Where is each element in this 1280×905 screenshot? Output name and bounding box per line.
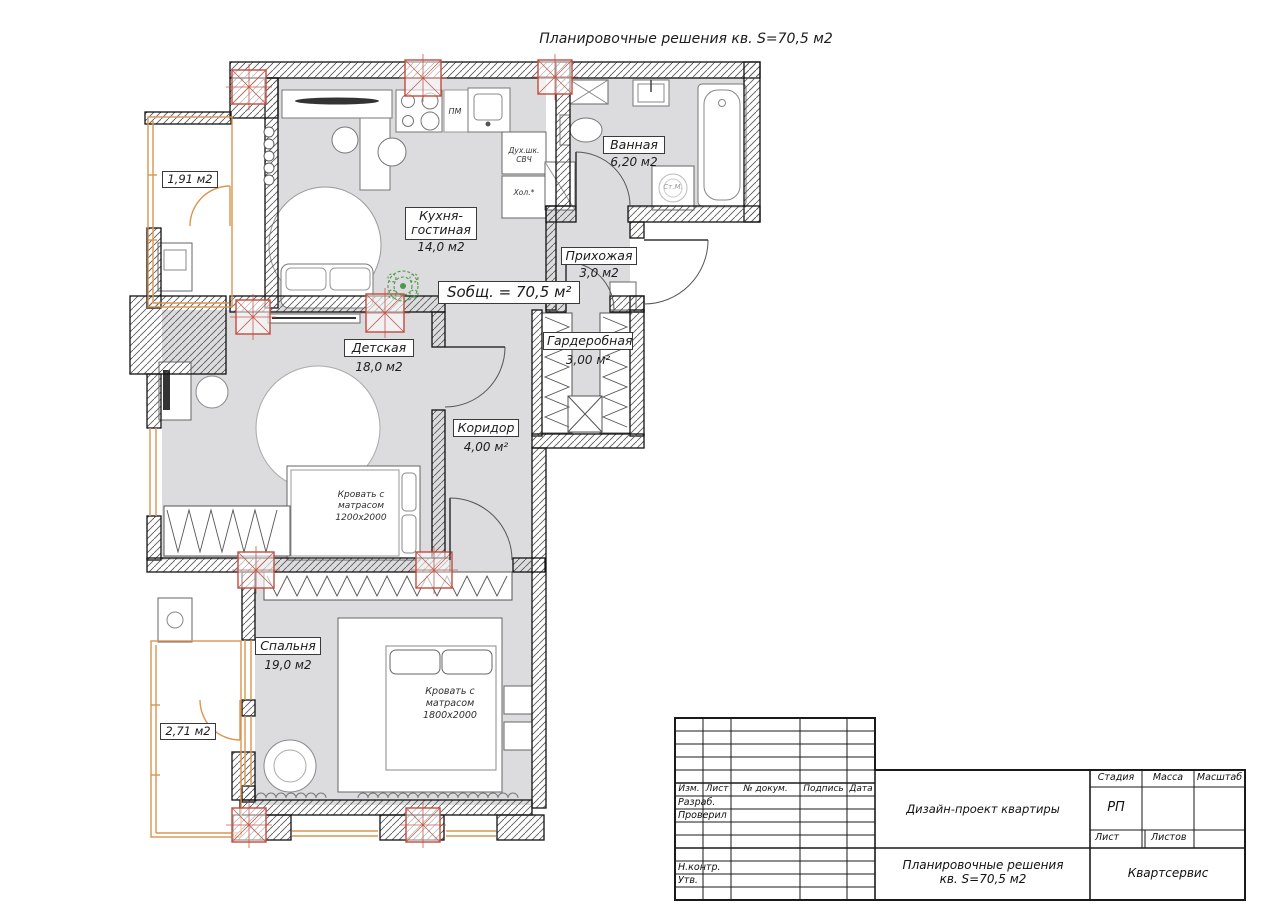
main-bed-label: Кровать с матрасом 1800х2000 [406, 686, 494, 722]
side-cabinet [158, 598, 192, 642]
room-label-bedroom: Спальня [255, 637, 321, 655]
total-area-label: Sобщ. = 70,5 м² [438, 281, 580, 304]
tb-sheet-label: Лист [1095, 832, 1119, 843]
room-area-bedroom: 19,0 м2 [255, 659, 321, 672]
wall [145, 112, 231, 124]
balcony-door-arc [190, 186, 230, 226]
tb-col-sign: Подпись [800, 784, 847, 794]
dishwasher-label: ПМ [443, 107, 467, 117]
entry-door-arc [644, 240, 708, 304]
page-title: Планировочные решения кв. S=70,5 м2 [486, 31, 886, 47]
wall [513, 558, 545, 572]
tb-row-nkontr: Н.контр. [678, 862, 721, 873]
room-label-kitchen: Кухня-гостиная [405, 207, 477, 240]
tb-row-proveril: Проверил [678, 810, 727, 821]
room-label-bathroom: Ванная [603, 136, 665, 154]
sofa-cushion [286, 268, 326, 290]
room-label-wardrobe: Гардеробная [543, 332, 633, 350]
wall [130, 296, 226, 374]
washer-label: Ст.М. [658, 183, 688, 192]
room-label-hallway: Прихожая [561, 247, 637, 265]
wall [532, 448, 546, 808]
column-marker-cross [410, 546, 458, 594]
armchair [264, 740, 316, 792]
nightstand [504, 722, 532, 750]
kids-monitor [163, 370, 170, 410]
kids-bed-label: Кровать с матрасом 1200х2000 [322, 490, 400, 524]
kids-chair [196, 376, 228, 408]
wall [532, 434, 644, 448]
toilet [570, 118, 602, 142]
balcony-bottom-area: 2,71 м2 [160, 723, 216, 740]
main-pillow [442, 650, 492, 674]
column-marker-cross [400, 802, 446, 848]
tb-col-izm: Изм. [675, 784, 703, 794]
tb-sheets-label: Листов [1151, 832, 1187, 843]
bedroom-wardrobe [264, 572, 512, 600]
column-marker-cross [232, 546, 280, 594]
column-marker-cross [399, 54, 447, 102]
bathtub [698, 84, 746, 206]
tb-scale-label: Масштаб [1194, 772, 1245, 783]
drawing-sheet: Планировочные решения кв. S=70,5 м2 Кухн… [0, 0, 1280, 905]
dining-chair [378, 138, 406, 166]
wall [432, 410, 445, 558]
dining-chair [332, 127, 358, 153]
wall [497, 815, 544, 840]
wall [532, 310, 542, 436]
nightstand [504, 686, 532, 714]
tb-mass-label: Масса [1142, 772, 1194, 783]
tb-row-utv: Утв. [678, 875, 698, 886]
column-marker-cross [360, 288, 410, 338]
fridge-label: Хол.* [502, 188, 546, 197]
room-area-corridor: 4,00 м² [453, 441, 519, 454]
main-pillow [390, 650, 440, 674]
wall [744, 62, 760, 222]
radiator-coil [264, 127, 274, 185]
wall [147, 558, 450, 572]
tb-stage-value: РП [1090, 800, 1142, 815]
column-marker-cross [226, 64, 272, 110]
oven-label: Дух.шк. СВЧ [502, 146, 546, 165]
wall [432, 312, 445, 347]
wall [630, 310, 644, 436]
tb-doc-title: Планировочные решения кв. S=70,5 м2 [880, 858, 1086, 887]
tb-col-doc: № докум. [731, 784, 800, 794]
room-area-kids: 18,0 м2 [344, 361, 414, 374]
kids-pillow [402, 473, 416, 511]
tb-row-razrab: Разраб. [678, 797, 715, 808]
wall [242, 700, 255, 716]
room-area-bathroom: 6,20 м2 [603, 156, 665, 169]
tb-company: Квартсервис [1092, 866, 1244, 880]
tb-project-name: Дизайн-проект квартиры [880, 802, 1086, 816]
wall [630, 222, 644, 238]
tb-col-date: Дата [847, 784, 875, 794]
room-label-kids: Детская [344, 339, 414, 357]
room-area-kitchen: 14,0 м2 [405, 241, 477, 254]
room-label-corridor: Коридор [453, 419, 519, 437]
sofa-cushion [330, 268, 370, 290]
balcony-top-area: 1,91 м2 [162, 171, 218, 188]
kitchen-hood-lens [295, 98, 379, 105]
wall [230, 62, 760, 78]
wardrobe-shelf-right [600, 313, 630, 433]
wall [240, 800, 532, 815]
column-marker-cross [226, 802, 272, 848]
wall [628, 206, 760, 222]
wall [147, 516, 161, 560]
kids-pillow [402, 515, 416, 553]
tb-stage-label: Стадия [1090, 772, 1142, 783]
wall [147, 374, 161, 428]
tb-col-list: Лист [703, 784, 731, 794]
column-marker-cross [230, 294, 276, 340]
room-area-wardrobe: 3,00 м² [543, 354, 633, 367]
room-area-hallway: 3,0 м2 [561, 267, 637, 280]
column-marker-cross [532, 54, 578, 100]
